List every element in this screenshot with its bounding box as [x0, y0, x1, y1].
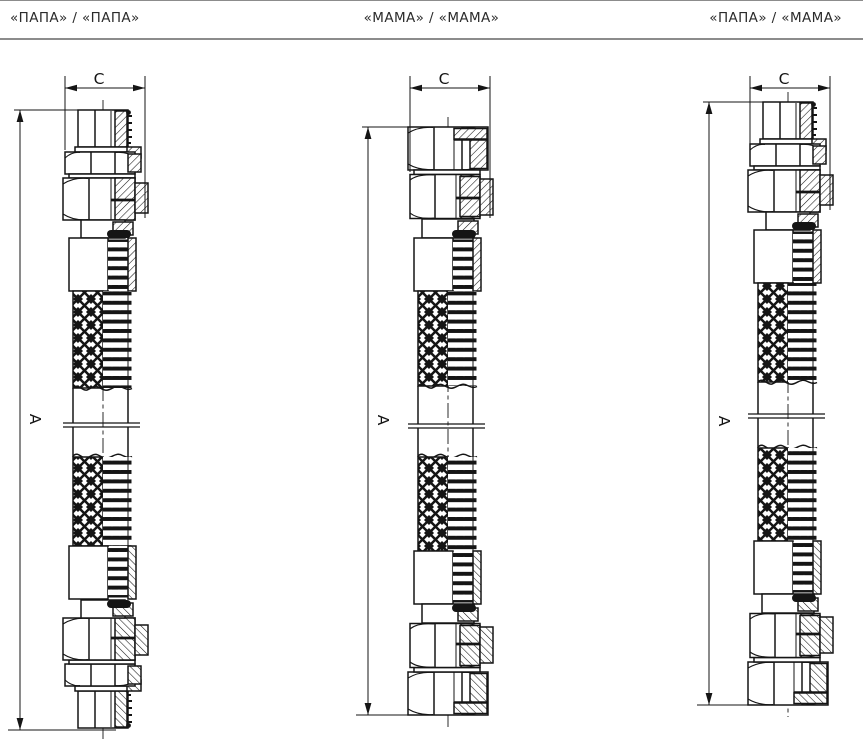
technical-drawing-page: { "header": { "labels": [ { "text": "«ПА…: [0, 0, 863, 745]
male-connector-top: [748, 102, 833, 230]
braided-hose-upper: [418, 291, 477, 388]
ferrule-bottom: [69, 546, 136, 599]
dim-width-label: C: [439, 70, 450, 88]
dim-length-label: A: [715, 416, 733, 427]
ferrule-bottom: [754, 541, 821, 594]
female-connector-bottom: [748, 594, 833, 705]
dim-width-label: C: [94, 70, 105, 88]
hose-break: [408, 386, 485, 457]
male-connector-bottom: [63, 600, 148, 728]
braided-hose-lower: [418, 454, 477, 551]
braided-hose-upper: [73, 291, 132, 390]
female-connector-bottom: [408, 604, 493, 715]
drawing-canvas: C A: [0, 0, 863, 745]
hose-break: [748, 382, 825, 448]
braided-hose-upper: [758, 283, 817, 384]
hose-assembly-mama-mama: C A: [356, 70, 493, 727]
ferrule-top: [754, 230, 821, 283]
ferrule-top: [414, 238, 481, 291]
hose-assembly-papa-mama: C A: [697, 70, 833, 717]
male-connector-top: [63, 110, 148, 238]
dim-length-label: A: [26, 414, 44, 425]
braided-hose-lower: [73, 454, 132, 546]
female-connector-top: [408, 127, 493, 238]
dim-width-label: C: [779, 70, 790, 88]
ferrule-top: [69, 238, 136, 291]
ferrule-bottom: [414, 551, 481, 604]
dim-length-label: A: [374, 415, 392, 426]
hose-assembly-papa-papa: C A: [8, 70, 148, 740]
braided-hose-lower: [758, 445, 817, 541]
hose-break: [63, 388, 140, 457]
